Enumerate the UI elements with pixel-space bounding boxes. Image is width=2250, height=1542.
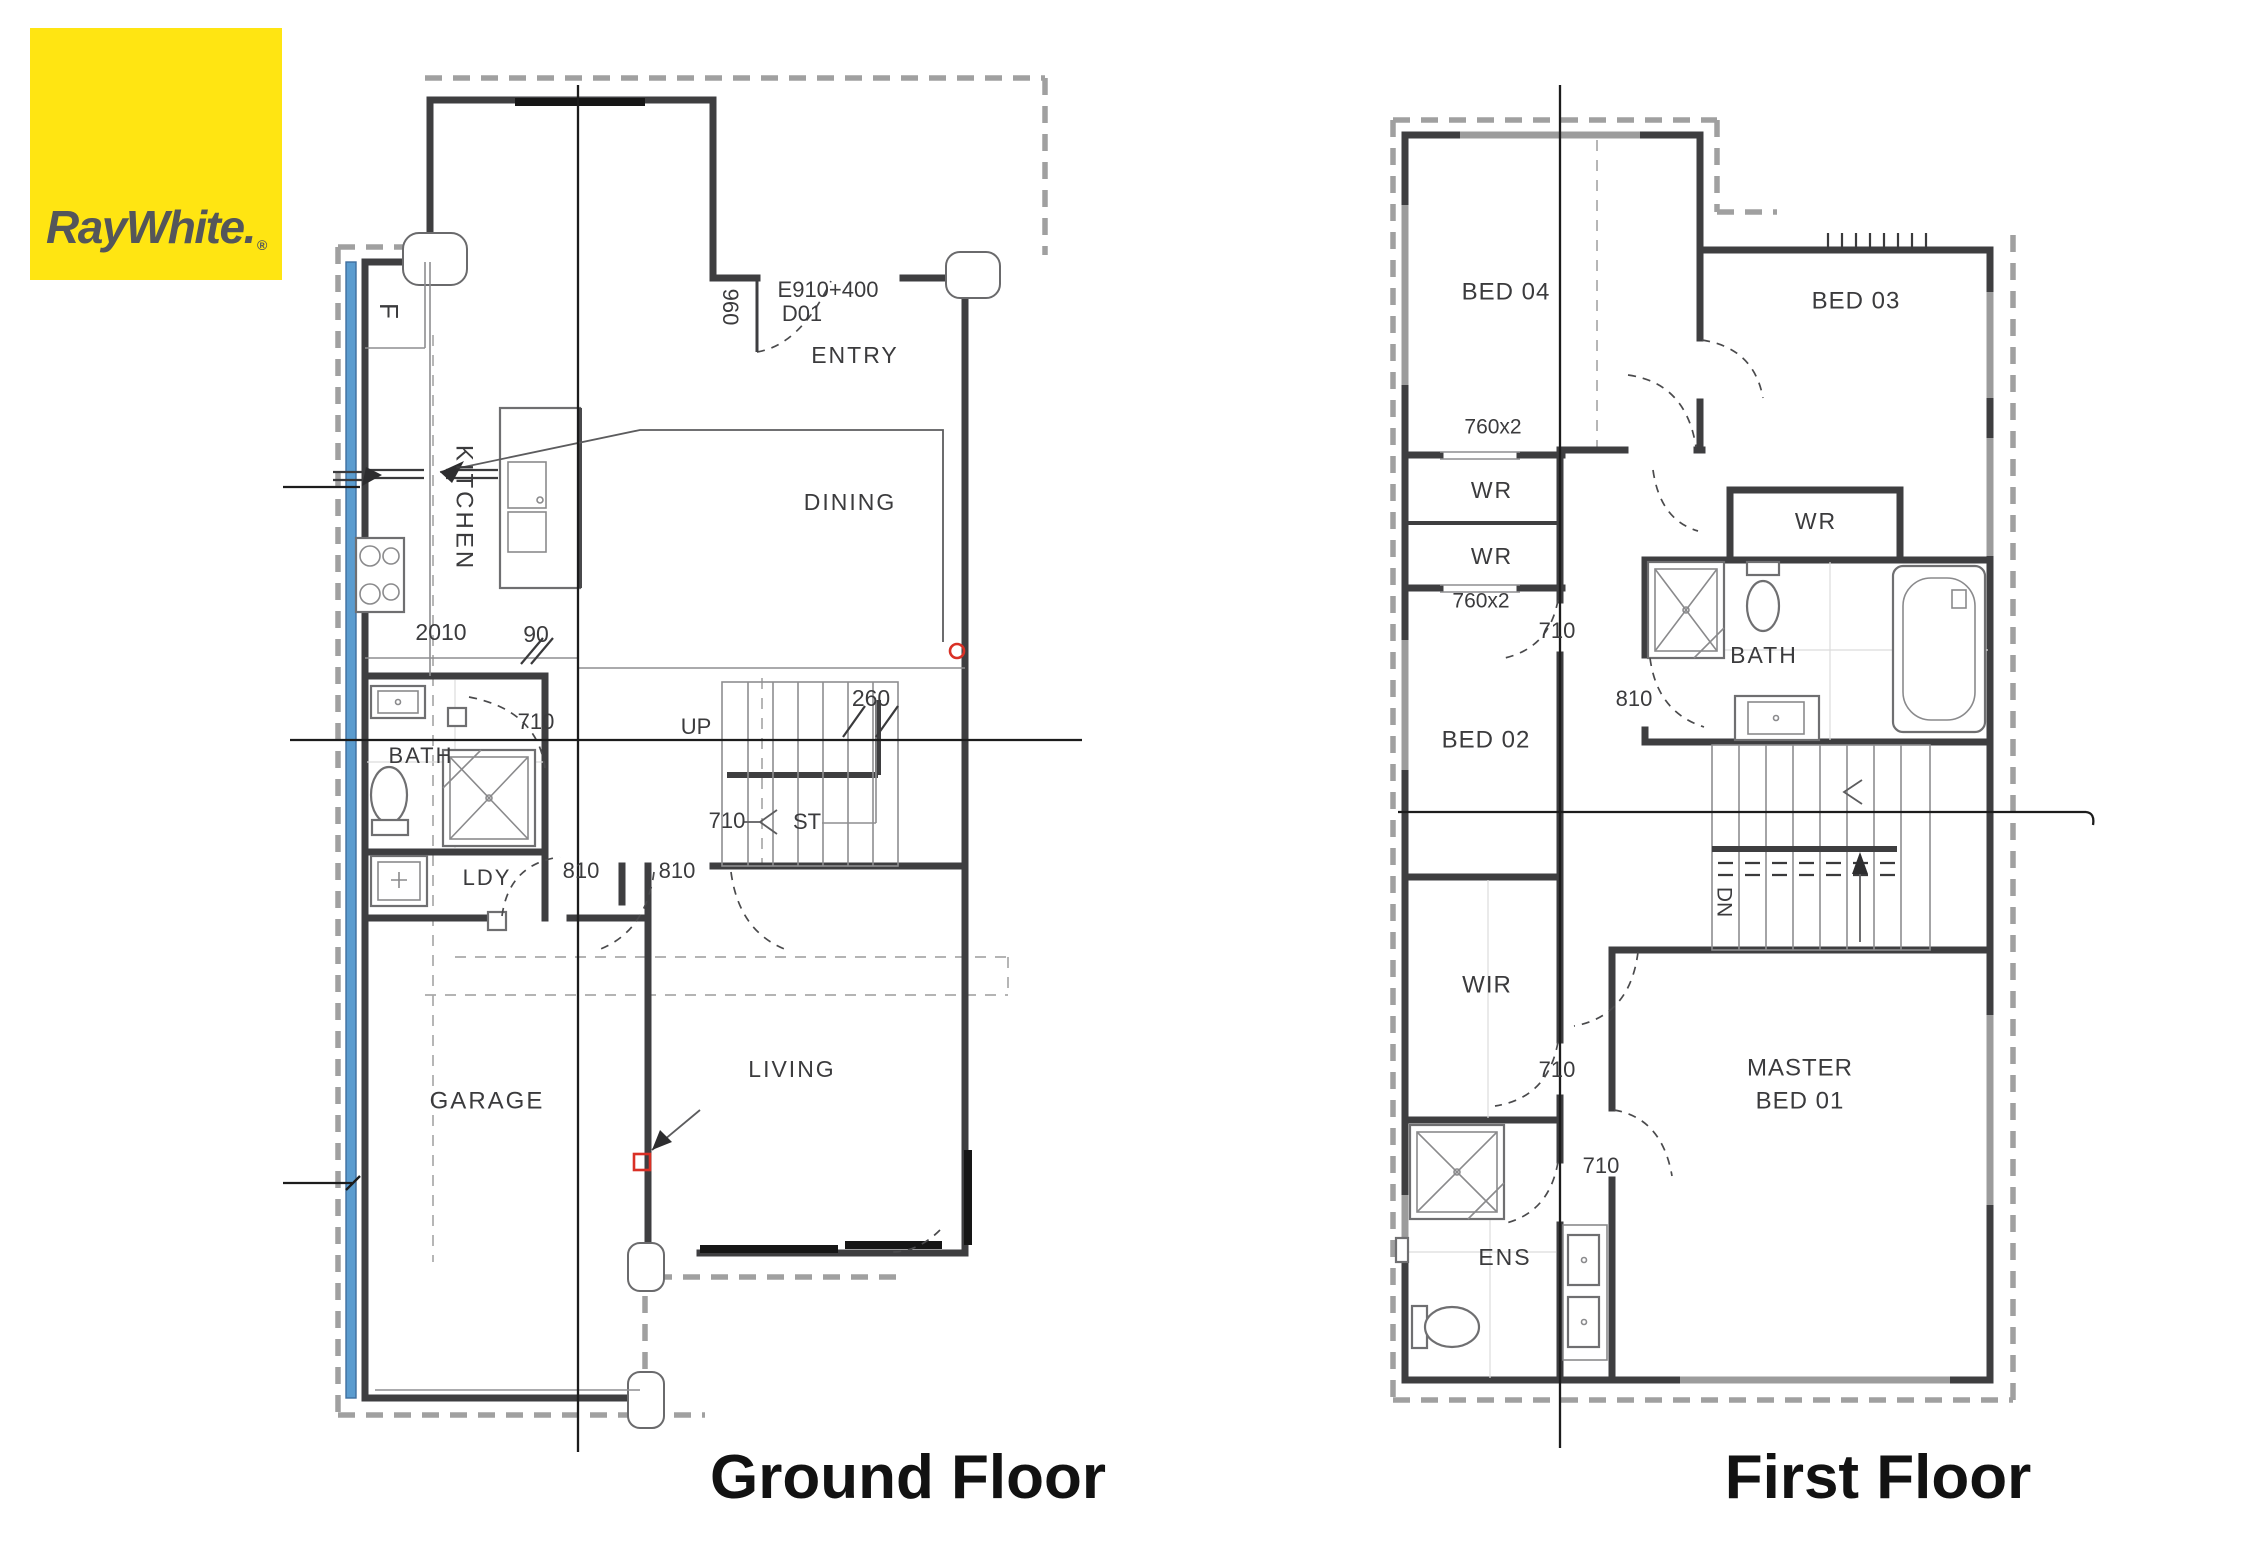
label-stairs-up: UP xyxy=(681,714,712,739)
ff-ens-vanity xyxy=(1563,1225,1607,1360)
label-room-master-1: MASTER xyxy=(1747,1054,1853,1081)
label-room-bed04: BED 04 xyxy=(1462,278,1551,305)
label-room-wr1: WR xyxy=(1471,477,1513,503)
label-room-bed03: BED 03 xyxy=(1812,287,1901,314)
label-room-bath: BATH xyxy=(388,743,453,768)
ff-ens-fixtures xyxy=(1396,1125,1607,1360)
ff-ens-window-nib xyxy=(1396,1238,1408,1262)
label-entry-code: E910+400 xyxy=(778,277,879,302)
ff-ens-shower xyxy=(1410,1125,1504,1219)
floor-plan-canvas: RayWhite. ® xyxy=(0,0,2250,1542)
gf-marker-arrowhead xyxy=(652,1130,672,1150)
first-floor-caption: First Floor xyxy=(1725,1443,2032,1512)
gf-column-porch xyxy=(946,252,1000,298)
gf-toilet xyxy=(371,767,407,823)
ff-bath-fixtures xyxy=(1648,562,1985,740)
gf-glazing xyxy=(515,102,968,1249)
ff-bath-toilet xyxy=(1747,581,1779,631)
label-room-wr2: WR xyxy=(1471,543,1513,569)
label-dim-810-a: 810 xyxy=(563,858,600,883)
label-room-wr3: WR xyxy=(1795,508,1837,534)
label-room-garage: GARAGE xyxy=(430,1087,545,1114)
label-room-ldy: LDY xyxy=(463,865,512,890)
logo-brand-text: RayWhite. xyxy=(46,201,255,253)
ff-bath-shower xyxy=(1648,562,1724,658)
label-dim-810: 810 xyxy=(1616,686,1653,711)
gf-column-nw xyxy=(403,233,467,285)
label-dim-260: 260 xyxy=(852,685,890,711)
label-room-living: LIVING xyxy=(748,1056,835,1082)
ground-floor-caption: Ground Floor xyxy=(710,1443,1106,1512)
gf-labels: FKITCHEN201090710BATHLDY810810960E910+40… xyxy=(374,277,899,1115)
gf-shower xyxy=(443,750,535,846)
gf-cooktop xyxy=(356,538,404,612)
label-dim-710-st: 710 xyxy=(709,808,746,833)
label-room-wir: WIR xyxy=(1462,971,1512,998)
label-dim-960: 960 xyxy=(718,289,743,326)
label-room-bath: BATH xyxy=(1730,642,1798,668)
label-entry-door: D01 xyxy=(782,301,822,326)
ff-ens-toilet xyxy=(1425,1307,1479,1347)
ff-bath-vanity xyxy=(1735,696,1819,740)
label-fridge: F xyxy=(374,303,404,319)
first-floor-plan: BED 04BED 03760x2WRWR760x2WR710BATH810BE… xyxy=(1393,85,2093,1448)
label-dim-710-bath: 710 xyxy=(518,709,555,734)
gf-column-se-upper xyxy=(628,1243,664,1291)
label-stairs-st: ST xyxy=(793,809,821,834)
label-room-dining: DINING xyxy=(804,489,897,515)
label-dim-810-b: 810 xyxy=(659,858,696,883)
ray-white-logo: RayWhite. ® xyxy=(30,28,282,280)
label-kitchen: KITCHEN xyxy=(451,445,478,571)
ff-bath-tub xyxy=(1893,566,1985,732)
label-dim-760x2-a: 760x2 xyxy=(1464,416,1521,439)
label-dim-90: 90 xyxy=(523,621,549,647)
ground-floor-plan: FKITCHEN201090710BATHLDY810810960E910+40… xyxy=(283,78,1082,1452)
logo-registered-mark: ® xyxy=(257,237,268,253)
label-dim-2010: 2010 xyxy=(415,619,466,645)
label-dim-710-wir: 710 xyxy=(1539,1057,1576,1082)
label-room-bed02: BED 02 xyxy=(1442,726,1531,753)
gf-west-window-strip xyxy=(346,262,356,1398)
ff-door-arcs xyxy=(1495,340,1763,1224)
label-room-master-2: BED 01 xyxy=(1756,1087,1845,1114)
ff-stairs xyxy=(1712,745,1930,950)
gf-stair-wall xyxy=(727,700,878,775)
floor-plan-page: RayWhite. ® xyxy=(0,0,2250,1542)
label-dim-710-bed02: 710 xyxy=(1539,618,1576,643)
label-stairs-dn: DN xyxy=(1712,887,1735,917)
gf-kitchen-island xyxy=(500,408,580,588)
label-room-entry: ENTRY xyxy=(811,342,899,368)
label-room-ens: ENS xyxy=(1478,1244,1531,1270)
label-dim-760x2-b: 760x2 xyxy=(1452,590,1509,613)
gf-column-se-lower xyxy=(628,1372,664,1428)
label-dim-710-ens: 710 xyxy=(1583,1153,1620,1178)
